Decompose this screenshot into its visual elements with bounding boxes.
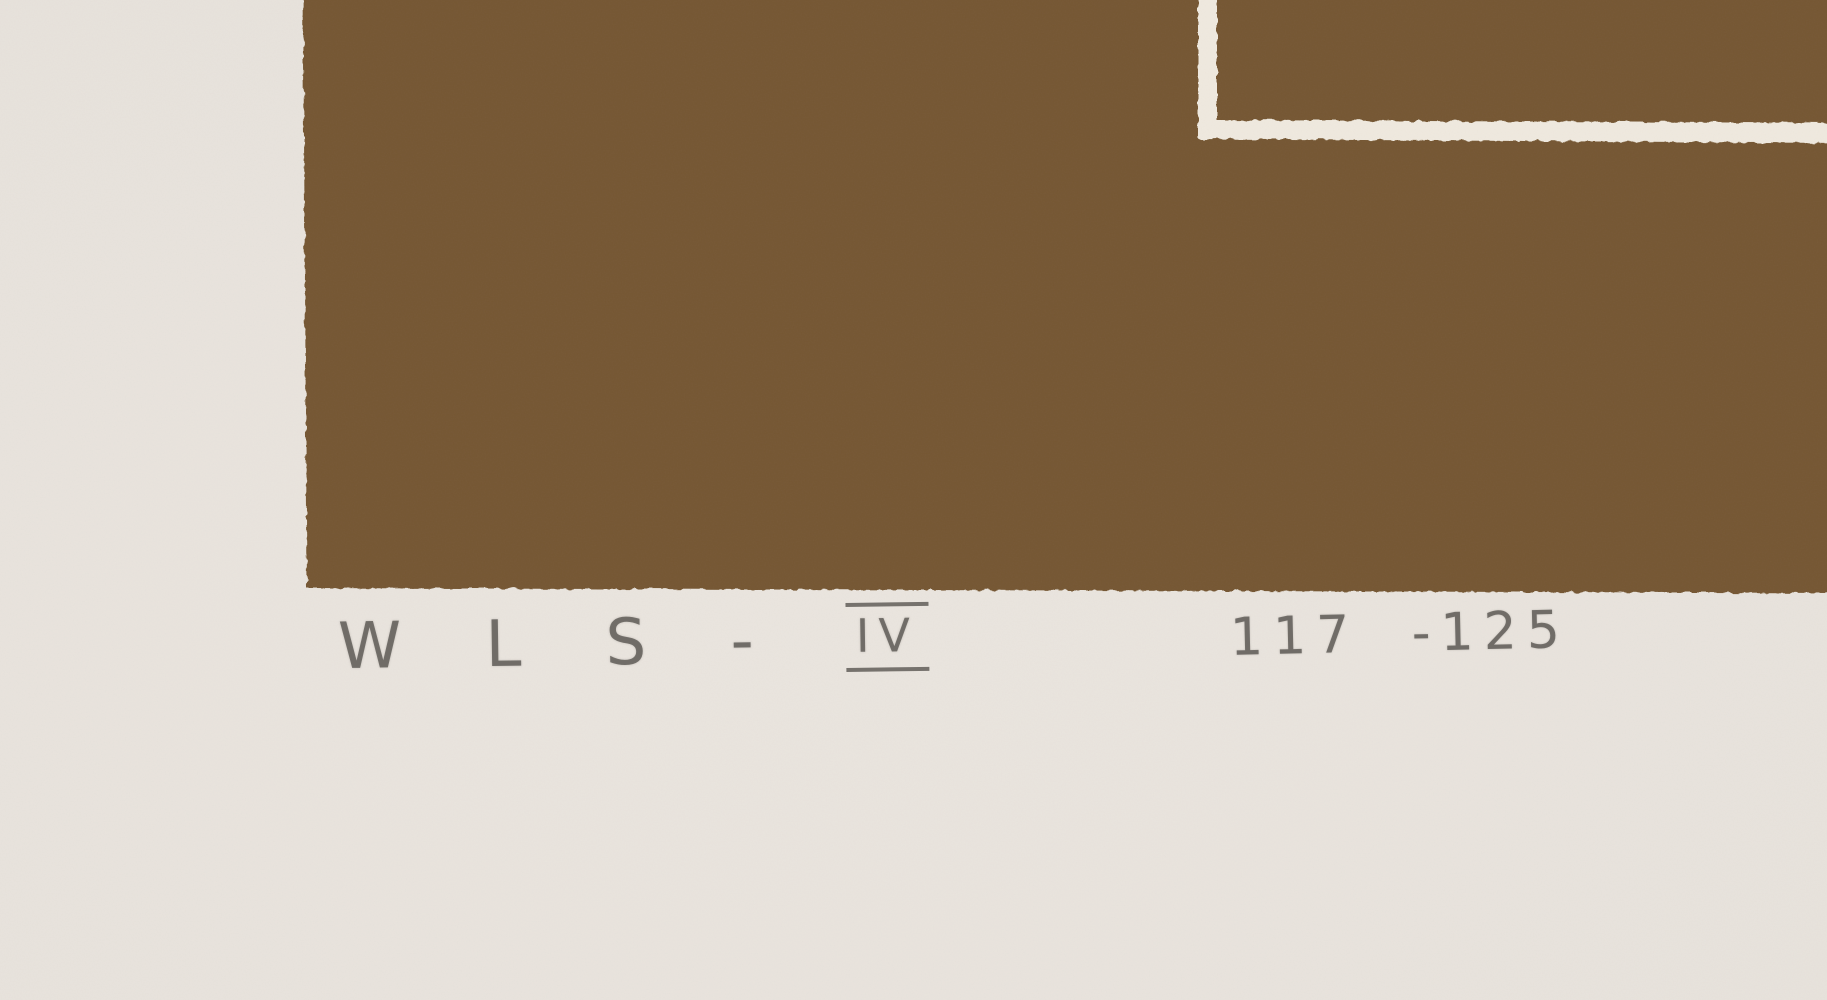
pencil-edition-number: 117 -125 bbox=[1229, 600, 1570, 668]
photo-grain-overlay bbox=[0, 0, 1827, 1000]
artwork-photo: W L S - IV 117 -125 bbox=[0, 0, 1827, 1000]
pencil-signature: W L S - IV bbox=[338, 602, 930, 684]
print-graphic bbox=[0, 0, 1827, 1000]
signature-numeral: IV bbox=[845, 602, 929, 672]
signature-prefix: W L S - bbox=[338, 604, 775, 684]
